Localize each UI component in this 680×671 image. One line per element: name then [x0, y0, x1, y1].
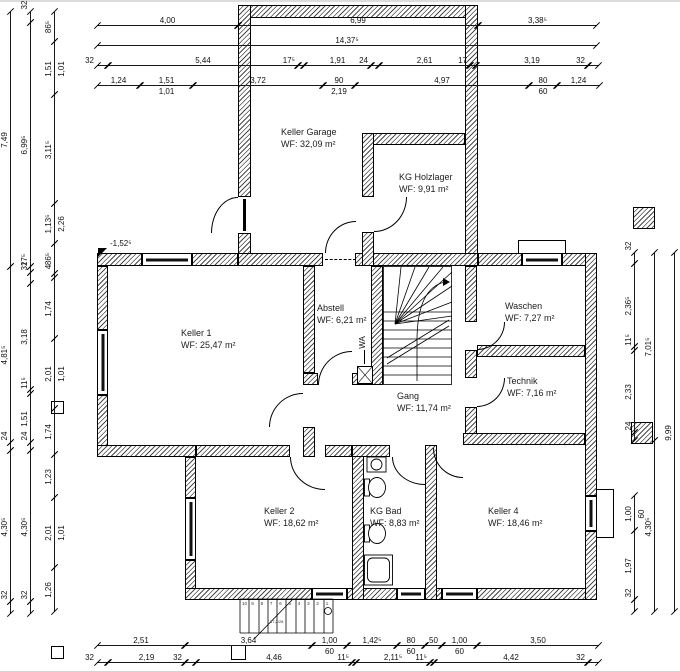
room-label-kg-holzlager: KG Holzlager WF: 9,91 m² — [399, 172, 453, 195]
dimension-value: 24 — [625, 422, 633, 431]
dimension-segment-h: 32 — [588, 662, 599, 663]
dimension-value: 60 — [455, 648, 464, 656]
dimension-segment-h: 1,24 — [557, 85, 600, 86]
dimension-value: 4 — [45, 265, 53, 269]
window-keller2-left — [185, 498, 196, 560]
dimension-segment-h: 6,99 — [238, 25, 478, 26]
dimension-segment-v: 1,74 — [54, 409, 55, 455]
dimension-value: 1,01 — [58, 61, 66, 77]
dimension-value: 32 — [625, 589, 633, 598]
dimension-value: 11⁵ — [415, 654, 427, 662]
dimension-segment-v: 7,01⁵ — [654, 253, 655, 441]
wa-label: WA — [358, 336, 367, 349]
dimension-value: 6,99⁵ — [21, 136, 29, 155]
dimension-value: 2,11⁵ — [384, 654, 402, 662]
dimension-segment-h: 1,91 — [304, 65, 371, 66]
room-area: WF: 11,74 m² — [397, 403, 451, 415]
wall-holzlager-left-lower — [362, 232, 374, 266]
dimension-segment-v: 1,97 — [634, 531, 635, 600]
room-label-keller2: Keller 2 WF: 18,62 m² — [264, 506, 319, 529]
light-shaft-keller4 — [595, 489, 614, 538]
dimension-value: 2,51 — [133, 637, 149, 645]
dimension-segment-h: 2,51 — [97, 645, 185, 646]
room-label-gang: Gang WF: 11,74 m² — [397, 391, 451, 414]
dimension-value: 1,00 — [625, 506, 633, 522]
dimension-segment-h: 4,42 — [434, 662, 588, 663]
room-label-keller4: Keller 4 WF: 18,46 m² — [488, 506, 543, 529]
dimension-segment-v: 4,30⁵ — [654, 441, 655, 612]
room-label-kg-bad: KG Bad WF: 8,83 m² — [370, 506, 420, 529]
door-arc-abstell — [318, 351, 352, 385]
dimension-segment-v: 7,49 — [10, 12, 11, 267]
dimension-segment-v: 1,51 — [30, 394, 31, 443]
window-keller1-top — [142, 253, 192, 266]
dimension-value: 17 — [458, 57, 467, 65]
dimension-value: 1,13⁵ — [45, 215, 53, 234]
dimension-value: 3,18 — [21, 329, 29, 345]
room-name: Keller Garage — [281, 127, 337, 139]
dimension-value: 1,51 — [21, 411, 29, 427]
room-area: WF: 18,62 m² — [264, 518, 319, 530]
window-waschen-top — [522, 253, 562, 266]
level-marker-icon — [98, 248, 107, 257]
dimension-value: 1,00 — [322, 637, 338, 645]
dimension-value: 32 — [173, 654, 182, 662]
dimension-segment-h: 1,42⁵ — [347, 645, 397, 646]
dimension-segment-v: 24 — [634, 433, 635, 441]
dimension-segment-v: 6,99⁵ — [30, 23, 31, 267]
room-area: WF: 18,46 m² — [488, 518, 543, 530]
floor-plan: 10987654321 17,2/28 -1,52⁵ WA Keller Gar… — [0, 0, 680, 671]
wa-leader-line — [364, 350, 365, 364]
dimension-segment-h: 3,50 — [477, 645, 599, 646]
dimension-segment-v: 32 — [634, 600, 635, 612]
dimension-segment-h: 4,46 — [196, 662, 352, 663]
dimension-segment-h: 4,00 — [97, 25, 238, 26]
dimension-value: 4,81⁵ — [1, 346, 9, 365]
dimension-value: 14,37⁵ — [335, 37, 358, 45]
stair-step-number: 7 — [270, 601, 273, 606]
dimension-segment-h: 3,64 — [185, 645, 312, 646]
dimension-segment-h: 50 — [425, 645, 442, 646]
shower-inner — [368, 558, 390, 582]
room-name: Keller 2 — [264, 506, 319, 518]
room-label-abstell: Abstell WF: 6,21 m² — [317, 303, 367, 326]
room-name: Gang — [397, 391, 451, 403]
dimension-segment-v: 4,30⁵ — [10, 451, 11, 602]
stair-step-number: 10 — [242, 601, 248, 606]
wall-left-step — [97, 445, 196, 457]
dimension-value: 9,99 — [665, 425, 673, 441]
dimension-segment-v: 32 — [10, 602, 11, 614]
dimension-value: 32 — [1, 591, 9, 600]
exterior-stair: 10987654321 17,2/28 — [240, 599, 333, 640]
dimension-value: 50 — [429, 637, 438, 645]
dimension-value: 4,30⁵ — [1, 517, 9, 536]
dimension-value: 80 — [407, 637, 416, 645]
room-name: Technik — [507, 376, 557, 388]
dimension-segment-h: 902,19 — [323, 85, 355, 86]
dimension-segment-v: 1,0060 — [634, 496, 635, 531]
downpipe-symbol-3 — [231, 645, 246, 660]
dimension-value: 2,26 — [58, 216, 66, 232]
dimension-segment-h: 32 — [588, 65, 599, 66]
dimension-value: 3,38⁵ — [528, 17, 547, 25]
dimension-value: 11⁵ — [21, 377, 29, 389]
dimension-segment-h: 8060 — [529, 85, 557, 86]
wall-keller1-right — [303, 266, 315, 373]
dimension-value: 1,74 — [45, 301, 53, 317]
room-name: KG Holzlager — [399, 172, 453, 184]
dimension-value: 3,11⁵ — [45, 140, 53, 158]
room-label-keller1: Keller 1 WF: 25,47 m² — [181, 328, 236, 351]
dimension-segment-h: 2,11⁵ — [356, 662, 430, 663]
wall-top-b — [192, 253, 238, 266]
dimension-segment-v: 32 — [30, 602, 31, 614]
stair-step-number: 1 — [326, 601, 329, 606]
garage-opening-dashed-line — [325, 259, 356, 260]
interior-stair — [383, 266, 452, 385]
dimension-segment-v: 9,99 — [674, 253, 675, 612]
dimension-value: 2,36⁵ — [625, 296, 633, 315]
door-arc-garage-exterior — [211, 197, 238, 233]
dimension-value: 17⁵ — [283, 57, 295, 65]
downpipe-symbol-2 — [51, 646, 64, 659]
dimension-segment-v: 1,26 — [54, 568, 55, 612]
window-bottom-3 — [442, 588, 477, 600]
dimension-segment-h: 14,37⁵ — [97, 45, 597, 46]
wall-holzlager-left-upper — [362, 133, 374, 197]
dimension-value: 1,42⁵ — [363, 637, 382, 645]
wall-abstell-bottom-a — [303, 373, 318, 385]
dimension-value: 32 — [21, 591, 29, 600]
dimension-value: 2,19 — [331, 88, 347, 96]
wall-garage-left-upper — [238, 5, 251, 197]
room-name: Waschen — [505, 301, 555, 313]
wall-waschen-left-b — [465, 350, 477, 378]
dimension-segment-v: 1,74 — [54, 278, 55, 339]
dimension-segment-h: 1,24 — [97, 85, 140, 86]
wall-keller2-top-a — [196, 445, 290, 457]
dimension-value: 32 — [625, 242, 633, 251]
stair-step-number: 2 — [316, 601, 319, 606]
dimension-value: 24 — [359, 57, 368, 65]
dimension-value: 2,33 — [625, 384, 633, 400]
dimension-value: 1,91 — [330, 57, 346, 65]
door-arc-keller4 — [433, 448, 463, 478]
dimension-value: 4,42 — [503, 654, 519, 662]
drain-circle — [371, 459, 382, 470]
stair-note: 17,2/28 — [270, 619, 284, 624]
room-name: Abstell — [317, 303, 367, 315]
stair-step-number: 4 — [298, 601, 301, 606]
dimension-value: 32 — [576, 57, 585, 65]
dimension-value: 1,23 — [45, 469, 53, 485]
room-area: WF: 25,47 m² — [181, 340, 236, 352]
dimension-segment-h: 2,61 — [379, 65, 470, 66]
dimension-value: 4,00 — [160, 17, 176, 25]
dimension-value: 24 — [21, 432, 29, 441]
dimension-segment-h: 4,97 — [355, 85, 529, 86]
dimension-value: 1,74 — [45, 424, 53, 440]
dimension-value: 86⁵ — [45, 21, 53, 33]
dimension-value: 3,72 — [250, 77, 266, 85]
dimension-value: 1,24 — [111, 77, 127, 85]
dimension-value: 32 — [85, 654, 94, 662]
dimension-value: 6,99 — [350, 17, 366, 25]
wall-waschen-left-a — [465, 266, 477, 322]
dimension-value: 1,26 — [45, 582, 53, 598]
wall-waschen-technik — [477, 345, 585, 357]
dimension-value: 60 — [325, 648, 334, 656]
level-marker-value: -1,52⁵ — [110, 239, 132, 248]
stair-step-number: 5 — [289, 601, 292, 606]
dimension-value: 1,51 — [159, 77, 175, 85]
dimension-segment-h: 5,44 — [108, 65, 298, 66]
dimension-segment-v: 2,36⁵ — [634, 264, 635, 347]
dimension-value: 1,24 — [571, 77, 587, 85]
dimension-segment-h: 1,0060 — [442, 645, 477, 646]
dimension-segment-h: 2,19 — [108, 662, 185, 663]
legend-hatch-box-1 — [633, 207, 655, 229]
wall-left-lower-a — [185, 457, 196, 498]
room-area: WF: 9,91 m² — [399, 184, 453, 196]
dimension-segment-v: 4,30⁵ — [30, 451, 31, 602]
stair-step-number: 6 — [279, 601, 282, 606]
stair-step-number: 8 — [261, 601, 264, 606]
dimension-value: 80 — [539, 77, 548, 85]
dimension-segment-v: 2,011,01 — [54, 498, 55, 568]
room-area: WF: 7,16 m² — [507, 388, 557, 400]
dimension-value: 3,64 — [241, 637, 257, 645]
wall-keller4-top — [463, 433, 585, 445]
dimension-value: 1,01 — [58, 525, 66, 541]
dimension-value: 4,30⁵ — [21, 517, 29, 536]
door-arc-keller2 — [290, 457, 325, 490]
dimension-value: 1,01 — [58, 366, 66, 382]
wall-right-lower — [585, 531, 597, 600]
wall-garage-bottom-left — [238, 253, 323, 266]
dimension-value: 11⁵ — [625, 334, 633, 346]
dimension-segment-v: 86⁵ — [54, 244, 55, 274]
door-arc-holzlager — [374, 197, 407, 232]
dimension-segment-v: 3,11⁵ — [54, 95, 55, 204]
dimension-value: 32 — [21, 1, 29, 10]
dimension-value: 32 — [576, 654, 585, 662]
light-shaft-waschen — [518, 240, 566, 254]
dimension-value: 4,97 — [434, 77, 450, 85]
wc1-bowl — [369, 478, 386, 498]
dimension-value: 1,01 — [159, 88, 175, 96]
dimension-value: 7,01⁵ — [645, 338, 653, 357]
room-area: WF: 8,83 m² — [370, 518, 420, 530]
window-keller4-right — [585, 496, 597, 531]
dimension-segment-h: 1,511,01 — [140, 85, 193, 86]
room-name: Keller 1 — [181, 328, 236, 340]
room-label-technik: Technik WF: 7,16 m² — [507, 376, 557, 399]
dimension-value: 7,49 — [1, 132, 9, 148]
wall-holzlager-top — [362, 133, 465, 145]
dimension-segment-v: 1,23 — [54, 455, 55, 498]
dimension-segment-h: 1,0060 — [312, 645, 347, 646]
exterior-stair-step-numbers: 10987654321 — [242, 601, 329, 606]
room-area: WF: 6,21 m² — [317, 315, 367, 327]
dimension-value: 2,19 — [139, 654, 155, 662]
dimension-segment-v: 1,511,01 — [54, 42, 55, 95]
dimension-segment-v: 1,13⁵2,26 — [54, 204, 55, 244]
dimension-value: 60 — [539, 88, 548, 96]
dimension-value: 11⁵ — [337, 654, 349, 662]
dimension-segment-h: 3,72 — [193, 85, 323, 86]
dimension-value: 90 — [335, 77, 344, 85]
dimension-segment-h: 3,38⁵ — [478, 25, 597, 26]
dimension-segment-h: 3,19 — [476, 65, 588, 66]
wall-keller2-top-b — [325, 445, 352, 457]
window-keller1-left — [97, 330, 108, 395]
room-area: WF: 32,09 m² — [281, 139, 337, 151]
door-arc-keller1 — [269, 393, 303, 427]
screenshot-top-edge — [0, 0, 680, 2]
wall-kgbad-left — [352, 445, 364, 600]
room-label-keller-garage: Keller Garage WF: 32,09 m² — [281, 127, 337, 150]
dimension-value: 2,61 — [417, 57, 433, 65]
door-arc-garage-abstell — [325, 221, 356, 253]
dimension-value: 1,00 — [452, 637, 468, 645]
room-name: KG Bad — [370, 506, 420, 518]
dimension-segment-v: 2,011,01 — [54, 339, 55, 409]
wall-left-upper-a — [97, 266, 108, 330]
dimension-segment-v: 4,81⁵ — [10, 267, 11, 443]
stair-step-number: 9 — [251, 601, 254, 606]
wall-kgbad-right — [425, 445, 437, 600]
dimension-segment-v: 2,33 — [634, 351, 635, 433]
dimension-segment-h: 8060 — [397, 645, 425, 646]
garage-door-leaf — [243, 199, 246, 231]
dimension-value: 3,19 — [524, 57, 540, 65]
dimension-value: 5,44 — [195, 57, 211, 65]
dimension-segment-v: 3,18 — [30, 284, 31, 390]
dimension-value: 1,51 — [45, 61, 53, 77]
dimension-value: 4,30⁵ — [645, 517, 653, 536]
wall-right-upper — [585, 253, 597, 496]
room-name: Keller 4 — [488, 506, 543, 518]
dimension-value: 1,97 — [625, 558, 633, 574]
room-area: WF: 7,27 m² — [505, 313, 555, 325]
dimension-value: 2,01 — [45, 366, 53, 382]
wall-top-c — [478, 253, 522, 266]
dimension-value: 32 — [85, 57, 94, 65]
door-arc-technik — [477, 378, 505, 407]
dimension-value: 24 — [1, 432, 9, 441]
dimension-segment-v: 86⁵ — [54, 12, 55, 42]
wall-bottom-d — [477, 588, 597, 600]
dimension-value: 32 — [21, 262, 29, 271]
dimension-value: 4,46 — [266, 654, 282, 662]
dimension-value: 60 — [407, 648, 416, 656]
wall-keller1-right-stub — [303, 427, 315, 457]
dimension-value: 2,01 — [45, 525, 53, 541]
dimension-value: 3,50 — [530, 637, 546, 645]
room-label-waschen: Waschen WF: 7,27 m² — [505, 301, 555, 324]
dimension-value: 86⁵ — [45, 253, 53, 265]
wa-symbol — [357, 366, 373, 384]
stair-step-number: 3 — [307, 601, 310, 606]
